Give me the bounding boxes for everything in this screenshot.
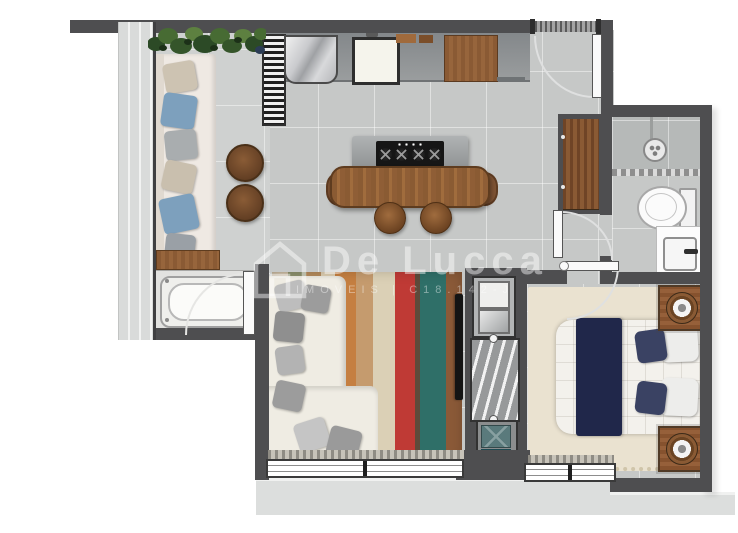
lamp <box>666 433 698 465</box>
exterior-ledge-living <box>256 478 614 515</box>
living-window <box>266 459 464 478</box>
tub-fixture <box>165 318 169 322</box>
pillow-beige <box>160 159 198 195</box>
tv-panel <box>455 294 463 400</box>
pillow-gray <box>273 311 306 344</box>
pillow-gray <box>300 284 332 314</box>
balcony-wood-bench <box>156 250 220 270</box>
entry-door-jamb <box>596 19 601 34</box>
laundry-basket <box>481 425 511 448</box>
burner-icon <box>379 148 392 161</box>
cabinet-handle <box>497 77 525 81</box>
dining-stool <box>374 202 406 234</box>
bedroom-window <box>524 463 616 482</box>
burner-icon <box>395 148 408 161</box>
pillow-beige <box>162 59 199 94</box>
doormat <box>535 21 596 32</box>
fridge <box>284 35 338 84</box>
wall-right <box>700 105 712 492</box>
side-table <box>226 184 264 222</box>
cutting-board <box>396 34 416 43</box>
cooktop-knob-dots <box>396 143 424 146</box>
entry-door-leaf <box>592 34 602 98</box>
wall-entry-side <box>601 20 613 117</box>
pillow-blue <box>158 193 201 236</box>
wall-bedroom-top-left <box>527 270 567 284</box>
wall-bedroom-top-right <box>612 272 712 284</box>
kitchen-wood-cabinet <box>444 35 498 82</box>
wardrobe-handle <box>561 135 565 139</box>
bedroom-door-hinge <box>559 261 569 271</box>
wall-living-left <box>255 264 269 480</box>
balcony-door-leaf <box>243 271 255 335</box>
dining-stool <box>420 202 452 234</box>
pillow-navy <box>634 380 668 415</box>
lamp <box>666 292 698 324</box>
cutting-board <box>419 35 433 43</box>
curtain-living <box>268 450 464 459</box>
pillow-gray <box>164 128 199 161</box>
wall-bathroom-top <box>601 105 712 117</box>
pillow-gray <box>274 344 306 376</box>
rack-knob <box>489 334 498 343</box>
bedroom-door-leaf <box>565 261 619 271</box>
shower-glass-partition <box>612 169 700 176</box>
kitchen-sink <box>352 37 400 85</box>
toilet-bowl-inner <box>645 193 677 221</box>
tub-fixture <box>165 279 169 283</box>
curtain-bedroom <box>528 455 614 463</box>
pillow-gray <box>271 379 306 413</box>
burner-icon <box>412 148 425 161</box>
vanity-basin <box>663 237 697 271</box>
burner-icon <box>428 148 441 161</box>
floor-plan: De Lucca IMOVEIS | C18.142-J <box>0 0 738 533</box>
utility-sink <box>478 281 510 309</box>
wardrobe <box>563 119 599 210</box>
bed-runner-navy <box>576 318 622 436</box>
bathroom-door-leaf <box>553 210 563 258</box>
wall-bedroom-bottom <box>610 478 712 492</box>
pillow-navy <box>634 328 668 364</box>
shower-head <box>643 138 667 162</box>
exterior-ledge-bedroom <box>610 492 735 515</box>
dining-table <box>330 166 490 208</box>
planter-greenery <box>148 24 266 60</box>
wall-window-pier <box>456 450 530 480</box>
side-table <box>226 144 264 182</box>
vanity-faucet <box>684 249 698 254</box>
drying-rack <box>470 338 520 422</box>
washer <box>478 309 510 334</box>
pillow-blue <box>160 92 198 130</box>
balcony-glass-railing <box>118 22 156 340</box>
wardrobe-handle <box>561 185 565 189</box>
